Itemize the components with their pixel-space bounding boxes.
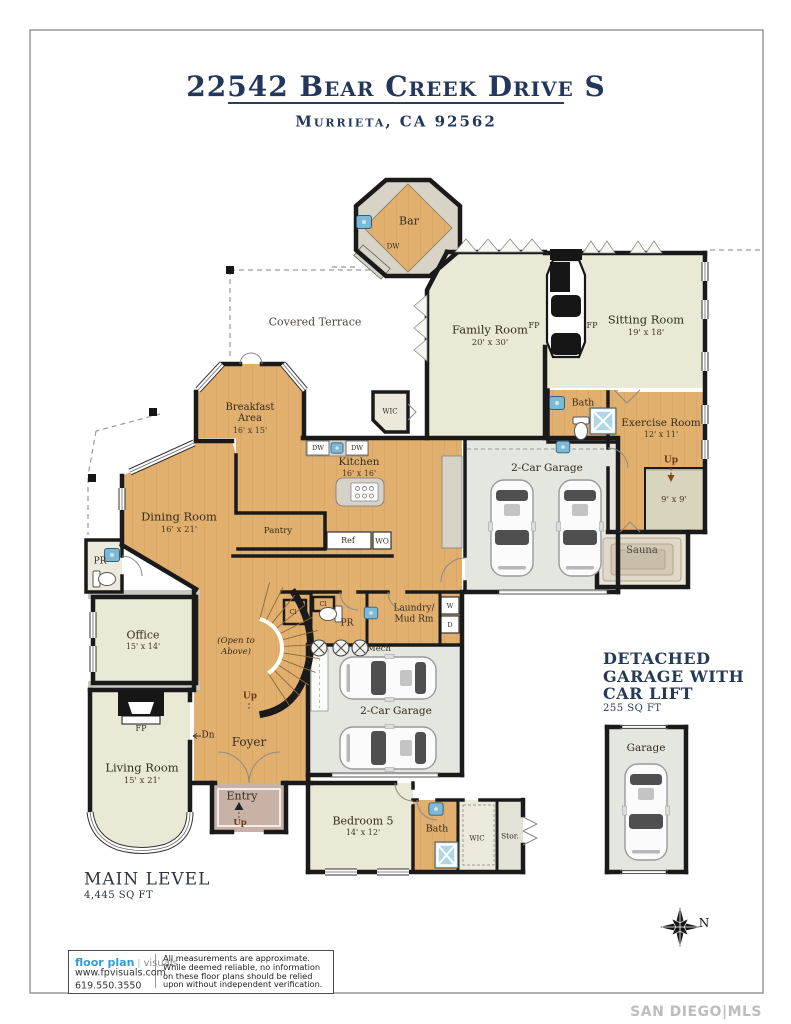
open-above-line1: (Open to: [217, 637, 254, 646]
dryer-label: D: [447, 622, 452, 629]
garage-utility-sink-icon: [556, 441, 570, 453]
up-exercise-label: Up: [664, 457, 678, 466]
detached-note-line2: GARAGE WITH: [603, 669, 744, 685]
car-icon: [623, 764, 670, 860]
bedroom5-dims: 14' x 12': [346, 829, 380, 837]
bar-label: Bar: [399, 216, 419, 227]
pr-left-sink-icon: [105, 549, 120, 562]
hall-floor: [194, 556, 462, 645]
washer-label: W: [447, 603, 454, 610]
garage-detached-label: Garage: [627, 743, 666, 754]
ref-label: Ref: [341, 537, 355, 545]
title-underline: [228, 102, 564, 104]
breakfast-label-line1: Breakfast: [226, 403, 275, 413]
living-room-label: Living Room: [105, 762, 178, 774]
fireplace-living: [118, 690, 164, 724]
office-label: Office: [126, 630, 159, 641]
bath-top-sink-icon: [550, 397, 565, 410]
laundry-label-line1: Laundry/: [393, 605, 434, 614]
exercise-room-label: Exercise Room: [621, 418, 701, 429]
pantry-label: Pantry: [264, 527, 292, 536]
mech-label: Mech: [367, 645, 391, 654]
covered-terrace-label: Covered Terrace: [269, 317, 362, 328]
floorplan-page: 22542 Bear Creek Drive S Murrieta, CA 92…: [0, 0, 791, 1024]
sitting-room-label: Sitting Room: [608, 314, 684, 326]
mech-tank-icon: [352, 640, 368, 656]
dn-label: Dn: [201, 732, 214, 741]
pr-left-toilet-icon: [93, 571, 116, 587]
car-icon: [489, 480, 536, 576]
mls-watermark: SAN DIEGO|MLS: [630, 1005, 762, 1019]
bath-bottom-label: Bath: [426, 824, 449, 834]
sauna-label: Sauna: [626, 546, 658, 556]
cl1-label: Cl: [289, 609, 296, 616]
page-subtitle: Murrieta, CA 92562: [295, 115, 497, 130]
bedroom5-label: Bedroom 5: [332, 816, 393, 827]
fp-family-label: FP: [529, 322, 540, 330]
up-stairs-label: Up: [243, 693, 257, 702]
stor-label: Stor.: [501, 832, 519, 840]
disclaimer-line: upon without independent verification.: [163, 980, 328, 989]
garage-bottom-label: 2-Car Garage: [360, 706, 432, 717]
kitchen-label: Kitchen: [338, 457, 379, 468]
sitting-room-dims: 19' x 18': [628, 329, 665, 338]
wic-top-label: WIC: [382, 409, 397, 416]
breakfast-dims: 16' x 15': [233, 427, 267, 435]
foyer-label: Foyer: [232, 736, 267, 748]
page-title: 22542 Bear Creek Drive S: [186, 73, 605, 101]
open-above-line2: Above): [221, 648, 251, 657]
bath-top-shower-icon: [590, 408, 616, 434]
laundry-label-line2: Mud Rm: [395, 616, 434, 625]
pr-left-label: PR: [94, 558, 107, 567]
car-icon: [340, 725, 436, 772]
bath-bottom-shower-icon: [435, 842, 458, 868]
landing-dims-label: 9' x 9': [661, 496, 687, 505]
compass-north-label: N: [699, 917, 710, 929]
pr-mid-label: PR: [341, 620, 354, 629]
foyer-floor: [194, 645, 311, 783]
detached-note-line3: CAR LIFT: [603, 686, 693, 702]
bath-top-label: Bath: [572, 398, 595, 408]
footer-disclaimer: All measurements are approximate. While …: [163, 954, 328, 989]
exercise-room-dims: 12' x 11': [644, 431, 678, 439]
car-icon: [557, 480, 604, 576]
bath-top-toilet-icon: [573, 417, 589, 440]
detached-note-line1: DETACHED: [603, 651, 710, 667]
kitchen-dw2-label: DW: [351, 445, 363, 452]
footer-website: www.fpvisuals.com: [75, 968, 166, 978]
office-dims: 15' x 14': [126, 643, 160, 651]
family-room-label: Family Room: [452, 324, 528, 336]
pr-mid-toilet-icon: [320, 606, 343, 622]
main-level-title: MAIN LEVEL: [84, 872, 210, 889]
detached-area-label: 255 SQ FT: [603, 704, 662, 714]
pr-mid-sink-icon: [364, 607, 378, 619]
cl2-label: Cl: [319, 601, 326, 608]
bath-bottom-sink-icon: [429, 803, 443, 815]
mech-tank-icon: [311, 640, 327, 656]
kitchen-dims: 16' x 16': [342, 470, 376, 478]
bar-sink-icon: [357, 216, 372, 229]
kitchen-sink-icon: [331, 443, 343, 453]
kitchen-dw1-label: DW: [312, 445, 324, 452]
mech-tank-icon: [333, 640, 349, 656]
fp-sitting-label: FP: [587, 322, 598, 330]
fp-living-label: FP: [136, 725, 147, 733]
up-entry-label: Up: [233, 819, 246, 828]
breakfast-label-line2: Area: [238, 414, 262, 424]
footer-phone: 619.550.3550: [75, 981, 141, 991]
bar-dw-label: DW: [387, 244, 400, 251]
entry-label: Entry: [226, 791, 257, 802]
dining-room-label: Dining Room: [141, 511, 217, 523]
wic-bottom-label: WIC: [469, 836, 484, 843]
main-level-area: 4,445 SQ FT: [84, 891, 153, 901]
fireplace-family-sitting: [547, 249, 585, 357]
car-icon: [340, 655, 436, 702]
dining-room-dims: 16' x 21': [161, 526, 198, 535]
wo-label: WO: [375, 537, 389, 545]
living-room-dims: 15' x 21': [124, 777, 161, 786]
compass-rose-icon: [660, 907, 700, 947]
garage-top-label: 2-Car Garage: [511, 463, 583, 474]
family-room-dims: 20' x 30': [472, 339, 509, 348]
